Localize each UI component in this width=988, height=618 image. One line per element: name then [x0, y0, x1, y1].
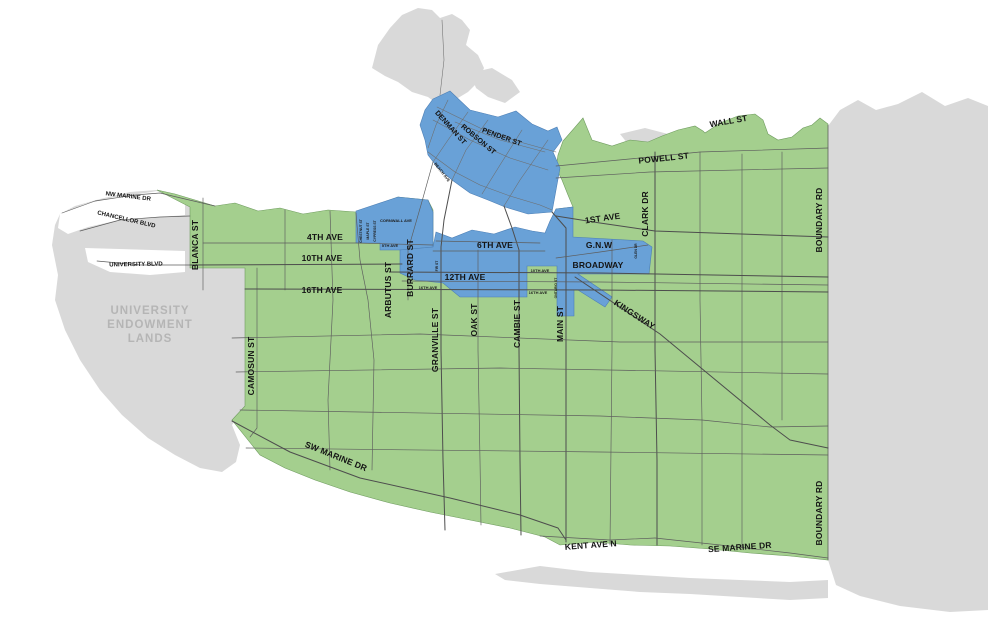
arbutus-st-label: ARBUTUS ST — [383, 261, 393, 318]
gnw-label: G.N.W — [586, 240, 613, 250]
10th-ave-tag: 10TH AVE — [531, 268, 550, 273]
boundary-rd-north-label: BOUNDARY RD — [814, 188, 824, 253]
uel-line1: UNIVERSITY — [110, 305, 189, 317]
blanca-st-label: BLANCA ST — [190, 219, 200, 270]
12th-ave-label: 12TH AVE — [445, 272, 486, 282]
camosun-st-label: CAMOSUN ST — [246, 336, 256, 395]
cambie-st-label: CAMBIE ST — [512, 299, 522, 348]
6th-ave-label: 6TH AVE — [477, 240, 513, 250]
vancouver-map: WALL ST POWELL ST DENMAN ST ROBSON ST PE… — [0, 0, 988, 618]
fir-st-tag: FIR ST — [435, 260, 439, 272]
maple-st-tag: MAPLE ST — [366, 222, 370, 240]
broadway-label: BROADWAY — [573, 260, 624, 270]
uel-line2: ENDOWMENT — [107, 319, 193, 331]
cornwall-ave-tag: CORNWALL AVE — [380, 218, 412, 223]
10th-ave-label: 10TH AVE — [302, 253, 343, 263]
16th-ave-tag-east: 16TH AVE — [529, 290, 548, 295]
4th-ave-label: 4TH AVE — [307, 232, 343, 242]
fraser-riverbank — [495, 566, 828, 600]
16th-ave-label: 16TH AVE — [302, 285, 343, 295]
boundary-rd-south-label: BOUNDARY RD — [814, 481, 824, 546]
clark-dr-label: CLARK DR — [640, 191, 650, 237]
glen-dr-tag: GLEN DR — [634, 243, 638, 259]
main-st-label: MAIN ST — [555, 305, 565, 342]
uel-line3: LANDS — [128, 333, 173, 345]
burrard-st-label: BURRARD ST — [405, 239, 415, 297]
oak-st-label: OAK ST — [469, 303, 479, 337]
stanley-park-area — [372, 8, 484, 110]
ontario-st-tag: ONTARIO ST — [554, 277, 558, 299]
granville-st-label: GRANVILLE ST — [430, 307, 440, 372]
burnaby-area — [828, 92, 988, 612]
5th-ave-tag: 5TH AVE — [382, 243, 399, 248]
university-blvd-label: UNIVERSITY BLVD — [109, 262, 163, 269]
harbour-pier-west — [470, 68, 520, 103]
cypress-st-tag: CYPRESS ST — [373, 219, 377, 241]
chestnut-st-tag: CHESTNUT ST — [359, 218, 363, 243]
16th-ave-tag-west: 16TH AVE — [419, 285, 438, 290]
